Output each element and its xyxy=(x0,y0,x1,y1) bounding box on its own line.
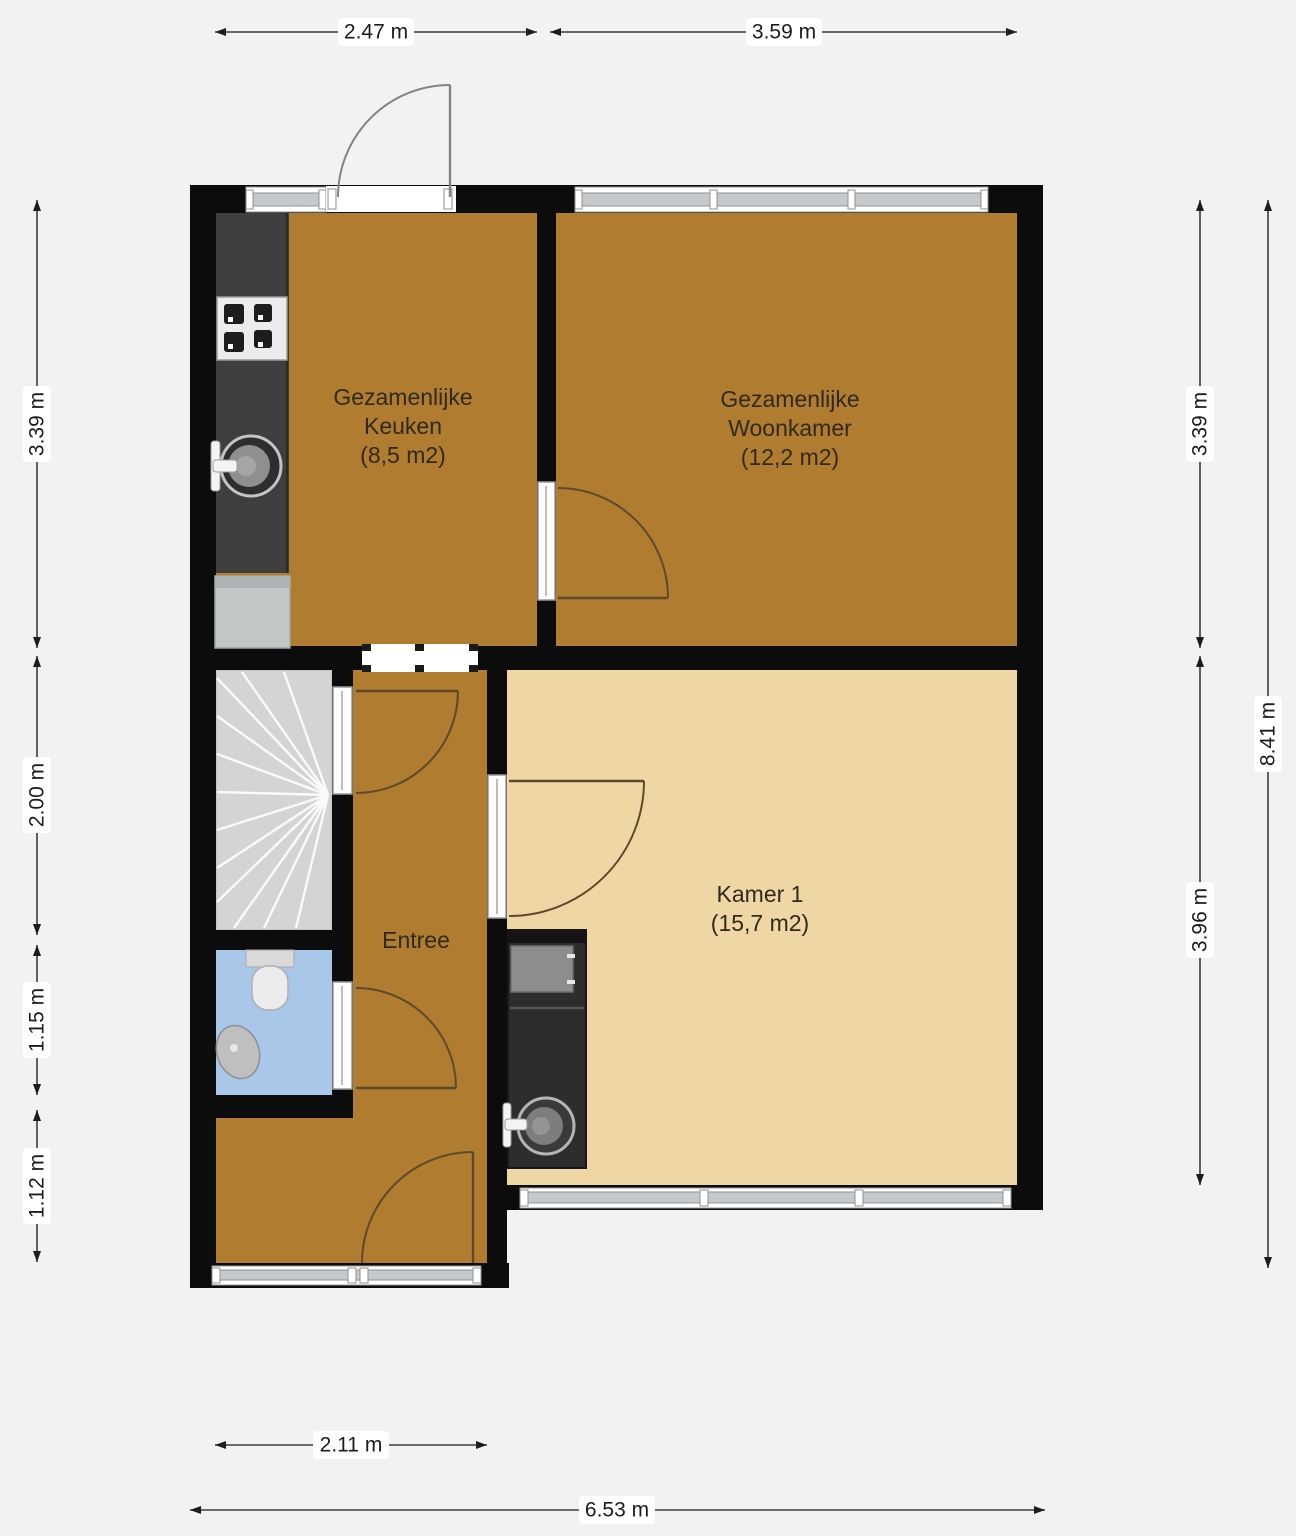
label-kamer1-line1: Kamer 1 xyxy=(717,881,804,907)
dim-label: 8.41 m xyxy=(1257,702,1280,766)
opening-keuken-entree xyxy=(362,644,478,672)
room-entree-lower-floor xyxy=(216,1118,353,1263)
dim-label: 1.15 m xyxy=(26,988,49,1052)
floorplan-canvas: Gezamenlijke Keuken (8,5 m2) Gezamenlijk… xyxy=(0,0,1296,1536)
wall-entree-kamer1 xyxy=(487,670,507,1288)
label-entree: Entree xyxy=(382,927,450,953)
dim-label: 2.47 m xyxy=(344,21,408,44)
dim-left-2: 2.00 m xyxy=(23,656,51,935)
dim-bottom-1: 2.11 m xyxy=(215,1431,487,1459)
dim-label: 2.00 m xyxy=(26,763,49,827)
dim-right-2: 3.96 m xyxy=(1186,656,1214,1185)
dim-label: 3.96 m xyxy=(1189,888,1212,952)
label-woonkamer-line1: Gezamenlijke xyxy=(720,386,859,412)
window-kamer1-bottom xyxy=(520,1188,1011,1208)
toilet-icon xyxy=(246,950,294,1010)
room-entree-floor xyxy=(353,670,487,1263)
stove-icon xyxy=(217,297,287,360)
dim-label: 6.53 m xyxy=(585,1499,649,1522)
dim-label: 1.12 m xyxy=(26,1154,49,1218)
kitchenette-counter xyxy=(503,930,586,1168)
wall-wc-bottom xyxy=(215,1095,353,1118)
label-keuken-line2: Keuken xyxy=(364,413,442,439)
kitchen-counter xyxy=(211,213,290,648)
dim-right-3: 8.41 m xyxy=(1254,200,1282,1268)
label-woonkamer-area: (12,2 m2) xyxy=(741,444,839,470)
label-keuken-line1: Gezamenlijke xyxy=(333,384,472,410)
wall-left xyxy=(190,185,216,1288)
kitchen-appliance-icon xyxy=(215,576,290,648)
kitchenette-appliance-icon xyxy=(511,946,575,992)
wall-right xyxy=(1017,185,1043,1210)
dim-left-1: 3.39 m xyxy=(23,200,51,648)
window-top-left xyxy=(246,187,326,212)
dim-top-1: 2.47 m xyxy=(215,18,537,46)
dim-right-1: 3.39 m xyxy=(1186,200,1214,648)
door-top-exterior xyxy=(326,85,456,212)
dim-bottom-2: 6.53 m xyxy=(190,1496,1045,1524)
wall-stairs-wc xyxy=(215,930,353,950)
dim-left-3: 1.15 m xyxy=(23,945,51,1095)
label-kamer1-area: (15,7 m2) xyxy=(711,910,809,936)
dim-left-4: 1.12 m xyxy=(23,1110,51,1262)
dim-label: 2.11 m xyxy=(320,1434,383,1457)
window-entree-bottom xyxy=(212,1266,481,1285)
stairs-icon xyxy=(216,670,332,930)
label-keuken-area: (8,5 m2) xyxy=(360,442,446,468)
wall-middle-horizontal xyxy=(190,646,1043,670)
dim-label: 3.39 m xyxy=(26,392,49,456)
label-woonkamer-line2: Woonkamer xyxy=(728,415,852,441)
dim-top-2: 3.59 m xyxy=(550,18,1017,46)
dim-label: 3.39 m xyxy=(1189,392,1212,456)
window-top-right xyxy=(575,187,988,212)
dim-label: 3.59 m xyxy=(752,21,816,44)
